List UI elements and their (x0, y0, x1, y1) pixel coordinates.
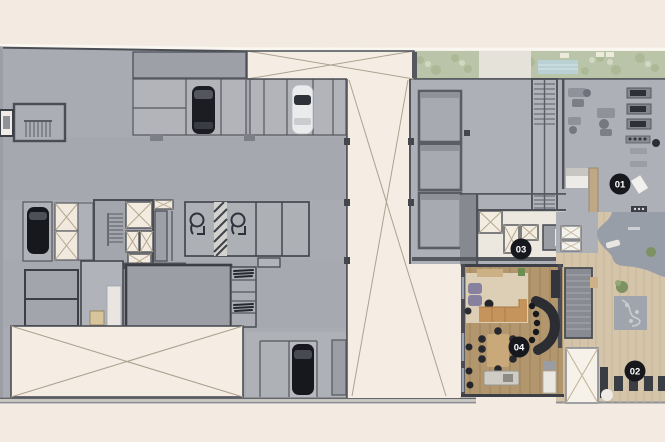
svg-text:02: 02 (630, 367, 641, 378)
svg-text:01: 01 (615, 180, 626, 191)
svg-text:03: 03 (516, 245, 527, 256)
svg-text:04: 04 (514, 343, 525, 354)
